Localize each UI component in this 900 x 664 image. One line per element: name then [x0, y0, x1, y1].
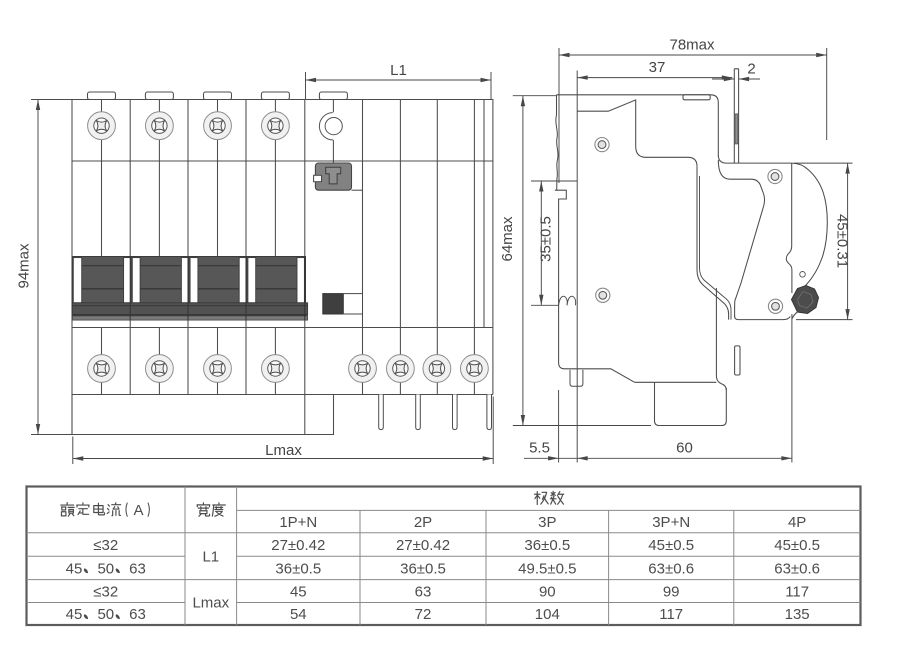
svg-text:45±0.31: 45±0.31: [834, 214, 851, 268]
svg-text:L1: L1: [202, 549, 219, 566]
svg-text:50: 50: [97, 606, 114, 623]
svg-text:63: 63: [415, 584, 432, 601]
svg-text:≤32: ≤32: [93, 537, 118, 554]
svg-text:63±0.6: 63±0.6: [774, 560, 820, 577]
svg-text:50: 50: [97, 560, 114, 577]
svg-text:94max: 94max: [16, 243, 33, 289]
svg-text:3P+N: 3P+N: [652, 514, 690, 531]
svg-text:49.5±0.5: 49.5±0.5: [518, 560, 576, 577]
svg-text:99: 99: [663, 584, 680, 601]
svg-text:45: 45: [66, 560, 83, 577]
svg-text:104: 104: [535, 606, 560, 623]
svg-text:60: 60: [676, 440, 693, 457]
svg-text:36±0.5: 36±0.5: [524, 537, 570, 554]
svg-text:4P: 4P: [788, 514, 806, 531]
svg-text:2P: 2P: [414, 514, 432, 531]
svg-text:63: 63: [129, 606, 146, 623]
svg-text:64max: 64max: [499, 216, 516, 262]
svg-text:3P: 3P: [538, 514, 556, 531]
svg-text:72: 72: [415, 606, 432, 623]
svg-text:35±0.5: 35±0.5: [538, 216, 555, 262]
svg-text:90: 90: [539, 584, 556, 601]
svg-text:Lmax: Lmax: [192, 595, 229, 612]
svg-text:27±0.42: 27±0.42: [271, 537, 325, 554]
svg-text:63±0.6: 63±0.6: [648, 560, 694, 577]
svg-text:54: 54: [290, 606, 307, 623]
svg-text:27±0.42: 27±0.42: [396, 537, 450, 554]
svg-text:45: 45: [66, 606, 83, 623]
svg-text:63: 63: [129, 560, 146, 577]
svg-text:5.5: 5.5: [529, 440, 550, 457]
svg-text:45±0.5: 45±0.5: [774, 537, 820, 554]
svg-text:36±0.5: 36±0.5: [275, 560, 321, 577]
svg-text:A: A: [133, 502, 143, 519]
svg-text:45: 45: [290, 584, 307, 601]
svg-text:45±0.5: 45±0.5: [648, 537, 694, 554]
svg-text:117: 117: [785, 584, 809, 601]
svg-text:117: 117: [659, 606, 683, 623]
svg-text:135: 135: [785, 606, 810, 623]
svg-text:37: 37: [649, 59, 666, 76]
svg-text:2: 2: [747, 61, 755, 78]
svg-text:≤32: ≤32: [93, 584, 118, 601]
svg-text:Lmax: Lmax: [265, 442, 302, 459]
svg-text:1P+N: 1P+N: [279, 514, 317, 531]
svg-text:36±0.5: 36±0.5: [400, 560, 446, 577]
svg-text:L1: L1: [390, 62, 407, 79]
svg-text:78max: 78max: [669, 37, 715, 54]
